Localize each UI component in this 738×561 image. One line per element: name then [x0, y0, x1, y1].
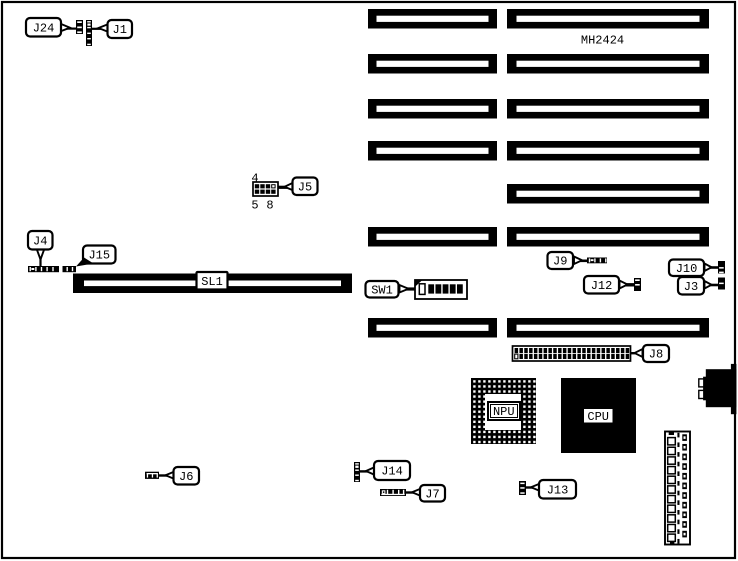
svg-text:J3: J3 [684, 280, 698, 294]
svg-text:J4: J4 [33, 234, 47, 248]
svg-text:SW1: SW1 [371, 283, 393, 297]
svg-text:J9: J9 [553, 255, 567, 269]
svg-text:J1: J1 [113, 23, 127, 37]
svg-text:CPU: CPU [587, 410, 609, 424]
svg-text:J12: J12 [591, 279, 613, 293]
svg-text:J15: J15 [88, 249, 110, 263]
svg-text:J24: J24 [33, 21, 55, 35]
svg-text:MH2424: MH2424 [581, 34, 624, 48]
svg-text:SL1: SL1 [201, 275, 223, 289]
svg-text:J14: J14 [381, 465, 403, 479]
svg-text:NPU: NPU [493, 405, 515, 419]
svg-text:J10: J10 [676, 262, 698, 276]
svg-text:8: 8 [266, 199, 273, 213]
svg-text:J13: J13 [547, 483, 569, 497]
svg-text:J6: J6 [179, 470, 193, 484]
svg-text:J7: J7 [425, 487, 439, 501]
svg-text:J8: J8 [649, 348, 663, 362]
svg-text:J5: J5 [298, 180, 312, 194]
svg-text:5: 5 [251, 199, 258, 213]
